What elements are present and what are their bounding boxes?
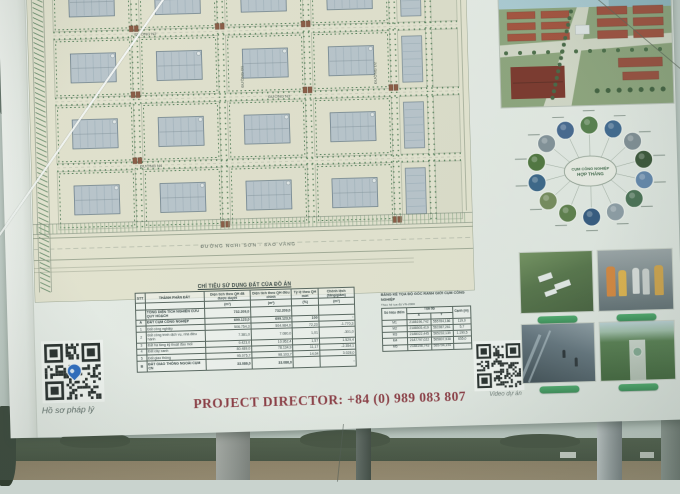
qr-pattern bbox=[476, 343, 521, 388]
rect-shape bbox=[512, 364, 514, 366]
billboard-pillar-concrete bbox=[216, 428, 250, 480]
rect-shape bbox=[510, 364, 512, 366]
water-tank bbox=[368, 47, 372, 51]
industry-photo-circle bbox=[580, 116, 598, 134]
rect-shape bbox=[68, 357, 71, 360]
industry-photo-circle bbox=[635, 171, 653, 189]
rect-shape bbox=[497, 346, 499, 348]
rect-shape bbox=[69, 392, 72, 395]
industry-photo-circle bbox=[625, 189, 643, 207]
rect-shape bbox=[96, 375, 99, 378]
rect-shape bbox=[85, 386, 88, 389]
rect-shape bbox=[76, 354, 79, 357]
rect-shape bbox=[61, 373, 64, 376]
rect-shape bbox=[519, 368, 521, 370]
photo-scene: ĐƯỜNG N2ĐƯỜNG N3ĐƯỜNG N4ĐƯỜNG D1ĐƯỜNG D2… bbox=[0, 0, 680, 480]
rect-shape bbox=[93, 391, 96, 394]
satellite-label bbox=[516, 185, 528, 186]
photo-label-pill bbox=[618, 383, 658, 391]
substation bbox=[303, 87, 307, 93]
rect-shape bbox=[82, 381, 85, 384]
industry-photo-circle bbox=[606, 203, 624, 221]
rect-shape bbox=[491, 365, 493, 367]
rect-shape bbox=[495, 360, 497, 362]
industry-photo-circle bbox=[634, 150, 652, 168]
industry-photo-circle bbox=[556, 121, 574, 139]
rect-shape bbox=[479, 363, 481, 365]
rect-shape bbox=[75, 394, 78, 397]
hub-spoke bbox=[570, 138, 579, 158]
rect-shape bbox=[85, 378, 88, 381]
rect-shape bbox=[493, 354, 495, 356]
rect-shape bbox=[495, 358, 497, 360]
water-tank bbox=[372, 179, 376, 183]
table-cell: M5 bbox=[383, 344, 408, 351]
avenue-path bbox=[629, 340, 646, 380]
rect-shape bbox=[69, 381, 72, 384]
rect-shape bbox=[58, 365, 61, 368]
rect-shape bbox=[66, 352, 69, 355]
table-cell bbox=[453, 343, 472, 350]
rect-shape bbox=[99, 393, 102, 396]
industry-photo-circle bbox=[539, 192, 557, 210]
rect-shape bbox=[494, 371, 496, 373]
rect-shape bbox=[72, 392, 75, 395]
rect-shape bbox=[45, 371, 48, 374]
rect-shape bbox=[511, 379, 513, 381]
photo-aerial-park bbox=[520, 251, 594, 313]
industry-photo-circle bbox=[623, 132, 641, 150]
hub-spoke bbox=[601, 137, 610, 157]
rect-shape bbox=[93, 380, 96, 383]
red-roof bbox=[597, 30, 627, 39]
coordinate-table: Số hiệu điểmTọa độCạnh (m)XY M12188196,7… bbox=[381, 305, 472, 351]
red-roof bbox=[541, 11, 569, 19]
photo-label-pill bbox=[616, 313, 656, 321]
rect-shape bbox=[479, 369, 481, 371]
rect-shape bbox=[485, 361, 487, 363]
rect-shape bbox=[481, 361, 483, 363]
person bbox=[562, 350, 565, 358]
satellite-label bbox=[641, 206, 653, 207]
aerial-rendering bbox=[498, 0, 673, 107]
satellite-label bbox=[552, 117, 564, 118]
photo-site-visit-people bbox=[598, 249, 674, 311]
rect-shape bbox=[90, 375, 93, 378]
rect-shape bbox=[506, 371, 508, 373]
industry-photo-circle bbox=[527, 153, 545, 171]
rect-shape bbox=[99, 396, 102, 399]
rect-shape bbox=[61, 365, 64, 368]
satellite-label bbox=[639, 131, 651, 132]
water-tank bbox=[112, 120, 116, 124]
rect-shape bbox=[96, 386, 99, 389]
street-label: ĐƯỜNG N3 bbox=[268, 93, 291, 99]
rect-shape bbox=[500, 383, 502, 385]
rect-shape bbox=[71, 354, 74, 357]
satellite-label bbox=[586, 230, 598, 231]
rect-shape bbox=[45, 368, 48, 371]
table-header-cell: Cạnh (m) bbox=[452, 306, 471, 319]
coordinate-section: BẢNG KÊ TỌA ĐỘ GÓC RANH GIỚI CỤM CÔNG NG… bbox=[381, 290, 473, 351]
rect-shape bbox=[72, 384, 75, 387]
rect-shape bbox=[508, 366, 510, 368]
water-tank bbox=[111, 54, 115, 58]
street-label: ĐƯỜNG N4 bbox=[140, 163, 163, 169]
rect-shape bbox=[69, 397, 72, 400]
water-tank bbox=[282, 49, 286, 53]
hub-spoke bbox=[591, 186, 592, 208]
rect-shape bbox=[498, 383, 500, 385]
red-roof bbox=[623, 71, 659, 80]
rect-shape bbox=[481, 378, 487, 384]
rect-shape bbox=[511, 375, 513, 377]
satellite-label bbox=[617, 223, 629, 224]
rect-shape bbox=[480, 348, 486, 354]
hub-center-line2: HỢP THẮNG bbox=[577, 171, 604, 177]
rect-shape bbox=[493, 346, 495, 348]
rect-shape bbox=[493, 363, 495, 365]
rect-shape bbox=[498, 371, 500, 373]
rect-shape bbox=[500, 373, 502, 375]
rendered-building bbox=[544, 288, 557, 297]
satellite-label bbox=[555, 225, 567, 226]
rect-shape bbox=[515, 383, 517, 385]
rect-shape bbox=[519, 370, 521, 372]
rect-shape bbox=[510, 362, 512, 364]
rect-shape bbox=[498, 362, 500, 364]
hub-spoke bbox=[616, 173, 636, 178]
substation bbox=[308, 87, 312, 93]
rect-shape bbox=[73, 349, 76, 352]
rect-shape bbox=[502, 354, 504, 356]
industry-photo-circle bbox=[537, 134, 555, 152]
satellite-label bbox=[654, 181, 666, 182]
rect-shape bbox=[87, 364, 90, 367]
table-header-cell: STT bbox=[135, 293, 145, 304]
water-tank bbox=[284, 115, 288, 119]
satellite-label bbox=[530, 209, 542, 210]
rect-shape bbox=[497, 354, 499, 356]
rect-shape bbox=[96, 394, 99, 397]
rect-shape bbox=[512, 362, 514, 364]
rect-shape bbox=[95, 364, 98, 367]
industrial-lot bbox=[430, 0, 458, 21]
rect-shape bbox=[497, 350, 499, 352]
hub-spoke bbox=[602, 184, 611, 204]
water-tank bbox=[200, 183, 204, 187]
rect-shape bbox=[51, 387, 59, 395]
photo-walkway bbox=[522, 323, 596, 383]
rect-shape bbox=[50, 373, 53, 376]
rect-shape bbox=[87, 367, 90, 370]
rect-shape bbox=[487, 361, 489, 363]
rect-shape bbox=[58, 373, 61, 376]
hub-spoke bbox=[589, 134, 590, 156]
rect-shape bbox=[98, 364, 101, 367]
rect-shape bbox=[69, 394, 72, 397]
rect-shape bbox=[519, 381, 521, 383]
industrial-lot bbox=[433, 95, 461, 154]
rect-shape bbox=[504, 375, 506, 377]
table-cell: 33.086,0 bbox=[252, 357, 294, 369]
qr-code-project-video bbox=[476, 343, 521, 388]
rect-shape bbox=[88, 386, 91, 389]
rect-shape bbox=[481, 365, 483, 367]
hub-spoke bbox=[546, 175, 566, 180]
person bbox=[618, 270, 627, 296]
table-cell: 2 bbox=[136, 332, 146, 343]
table-cell: 1,01 bbox=[293, 327, 320, 338]
project-billboard: ĐƯỜNG N2ĐƯỜNG N3ĐƯỜNG N4ĐƯỜNG D1ĐƯỜNG D2… bbox=[0, 0, 680, 438]
rect-shape bbox=[506, 375, 508, 377]
satellite-label bbox=[583, 110, 595, 111]
rect-shape bbox=[80, 386, 83, 389]
rect-shape bbox=[512, 368, 514, 370]
rect-shape bbox=[66, 354, 69, 357]
rect-shape bbox=[55, 373, 58, 376]
rect-shape bbox=[494, 379, 496, 381]
substation bbox=[129, 26, 133, 32]
rect-shape bbox=[88, 394, 91, 397]
rect-shape bbox=[483, 367, 485, 369]
red-roof bbox=[633, 17, 663, 26]
rect-shape bbox=[65, 349, 68, 352]
rect-shape bbox=[93, 367, 96, 370]
satellite-label bbox=[528, 134, 540, 135]
red-roof bbox=[508, 34, 536, 42]
rect-shape bbox=[477, 369, 479, 371]
table-header-cell: Tỷ lệ theo QH mới bbox=[291, 288, 318, 299]
water-tank bbox=[198, 117, 202, 121]
rect-shape bbox=[498, 360, 500, 362]
rect-shape bbox=[55, 365, 58, 368]
substation bbox=[389, 85, 393, 91]
distant-building bbox=[640, 452, 654, 458]
rect-shape bbox=[93, 372, 96, 375]
rect-shape bbox=[515, 370, 517, 372]
rect-shape bbox=[65, 346, 68, 349]
rect-shape bbox=[517, 381, 519, 383]
rect-shape bbox=[500, 360, 502, 362]
rect-shape bbox=[49, 349, 57, 357]
rect-shape bbox=[74, 351, 77, 354]
water-tank bbox=[197, 51, 201, 55]
rect-shape bbox=[502, 362, 504, 364]
project-director-hotline: PROJECT DIRECTOR: +84 (0) 989 083 807 bbox=[120, 387, 540, 415]
rect-shape bbox=[88, 391, 91, 394]
substation bbox=[301, 21, 305, 27]
industrial-lot bbox=[435, 161, 463, 220]
industry-photo-circle bbox=[558, 204, 576, 222]
rendered-building bbox=[554, 279, 571, 290]
rect-shape bbox=[72, 389, 75, 392]
person bbox=[642, 268, 650, 294]
red-roof bbox=[618, 57, 662, 67]
rect-shape bbox=[502, 383, 504, 385]
substation bbox=[221, 221, 225, 227]
qr-caption-left: Hồ sơ pháp lý bbox=[42, 403, 132, 416]
satellite-label bbox=[653, 155, 665, 156]
rect-shape bbox=[495, 350, 497, 352]
rect-shape bbox=[487, 365, 489, 367]
rect-shape bbox=[517, 375, 519, 377]
rect-shape bbox=[494, 377, 496, 379]
rect-shape bbox=[91, 388, 94, 391]
person bbox=[606, 266, 616, 296]
rect-shape bbox=[497, 356, 499, 358]
rect-shape bbox=[495, 354, 497, 356]
hub-spoke bbox=[615, 162, 635, 167]
rect-shape bbox=[55, 368, 58, 371]
table-cell: 565794,194 bbox=[431, 343, 453, 350]
rect-shape bbox=[500, 362, 502, 364]
person bbox=[575, 357, 578, 366]
tree-clump bbox=[500, 434, 580, 448]
substation bbox=[394, 84, 398, 90]
rect-shape bbox=[98, 372, 101, 375]
table-row: M52188198,743565794,194 bbox=[383, 343, 472, 352]
photo-label-pill bbox=[539, 385, 579, 393]
hub-spoke bbox=[571, 185, 580, 205]
rendered-building bbox=[538, 272, 553, 282]
rect-shape bbox=[55, 371, 58, 374]
industry-hub-diagram: CỤM CÔNG NGHIỆPHỢP THẮNG bbox=[508, 105, 674, 251]
rect-shape bbox=[50, 376, 53, 379]
rect-shape bbox=[83, 386, 86, 389]
substation bbox=[306, 21, 310, 27]
satellite-label bbox=[614, 115, 626, 116]
table-cell: - bbox=[320, 355, 356, 366]
rect-shape bbox=[487, 367, 489, 369]
rect-shape bbox=[506, 369, 508, 371]
table-cell: 2188198,743 bbox=[408, 344, 432, 351]
rect-shape bbox=[91, 391, 94, 394]
master-plan-map: ĐƯỜNG N2ĐƯỜNG N3ĐƯỜNG N4ĐƯỜNG D1ĐƯỜNG D2… bbox=[26, 0, 475, 303]
rect-shape bbox=[71, 357, 74, 360]
red-roof bbox=[541, 22, 569, 30]
rect-shape bbox=[498, 379, 500, 381]
rect-shape bbox=[65, 344, 68, 347]
satellite-label bbox=[515, 158, 527, 159]
rect-shape bbox=[493, 361, 495, 363]
rect-shape bbox=[58, 371, 61, 374]
rect-shape bbox=[73, 346, 76, 349]
rect-shape bbox=[491, 363, 493, 365]
rect-shape bbox=[95, 367, 98, 370]
rect-shape bbox=[93, 370, 96, 373]
rect-shape bbox=[496, 371, 498, 373]
rect-shape bbox=[513, 373, 515, 375]
rect-shape bbox=[45, 376, 48, 379]
rect-shape bbox=[77, 381, 80, 384]
substation bbox=[226, 221, 230, 227]
rect-shape bbox=[515, 366, 517, 368]
rect-shape bbox=[500, 371, 502, 373]
rect-shape bbox=[63, 373, 66, 376]
rect-shape bbox=[507, 381, 509, 383]
rect-shape bbox=[76, 357, 79, 360]
substation bbox=[220, 23, 224, 29]
rect-shape bbox=[96, 396, 99, 399]
hub-spoke bbox=[554, 149, 570, 163]
rect-shape bbox=[75, 389, 78, 392]
rect-shape bbox=[85, 383, 88, 386]
street-label: ĐƯỜNG D1 bbox=[239, 65, 245, 88]
substation bbox=[131, 92, 135, 98]
rect-shape bbox=[496, 383, 498, 385]
rect-shape bbox=[502, 364, 504, 366]
rect-shape bbox=[481, 369, 483, 371]
rect-shape bbox=[502, 369, 504, 371]
table-cell bbox=[292, 305, 319, 316]
rect-shape bbox=[485, 365, 487, 367]
rect-shape bbox=[500, 354, 502, 356]
industrial-lot bbox=[431, 29, 459, 88]
table-cell: B bbox=[137, 361, 147, 372]
rect-shape bbox=[500, 365, 502, 367]
rect-shape bbox=[517, 372, 519, 374]
industry-photo-circle bbox=[582, 208, 600, 226]
rect-shape bbox=[68, 354, 71, 357]
rect-shape bbox=[506, 362, 508, 364]
water-tank bbox=[286, 181, 290, 185]
person bbox=[632, 268, 640, 294]
substation bbox=[133, 158, 137, 164]
rect-shape bbox=[504, 362, 506, 364]
rect-shape bbox=[500, 369, 502, 371]
rect-shape bbox=[61, 370, 64, 373]
land-use-section: CHỈ TIÊU SỬ DỤNG ĐẤT CỦA ĐỒ ÁN STTTHÀNH … bbox=[134, 280, 356, 373]
rect-shape bbox=[504, 377, 506, 379]
rect-shape bbox=[77, 386, 80, 389]
water-tank bbox=[114, 186, 118, 190]
rect-shape bbox=[514, 362, 516, 364]
rect-shape bbox=[502, 356, 504, 358]
rect-shape bbox=[69, 386, 72, 389]
photo-label-pill bbox=[537, 315, 577, 323]
industry-photo-circle bbox=[604, 120, 622, 138]
red-roof bbox=[507, 23, 535, 31]
rect-shape bbox=[75, 397, 78, 400]
rect-shape bbox=[495, 352, 497, 354]
substation bbox=[136, 92, 140, 98]
rect-shape bbox=[508, 364, 510, 366]
rect-shape bbox=[516, 362, 518, 364]
rect-shape bbox=[508, 373, 510, 375]
hub-spoke bbox=[555, 181, 571, 195]
rect-shape bbox=[76, 343, 79, 346]
rect-shape bbox=[87, 348, 95, 356]
rect-shape bbox=[496, 377, 498, 379]
rect-shape bbox=[50, 368, 53, 371]
tree-clump bbox=[300, 430, 390, 448]
rect-shape bbox=[493, 352, 495, 354]
rect-shape bbox=[511, 381, 513, 383]
street-label: ĐƯỜNG D2 bbox=[372, 61, 378, 84]
rect-shape bbox=[506, 373, 508, 375]
substation bbox=[398, 216, 402, 222]
rect-shape bbox=[93, 375, 96, 378]
white-building bbox=[575, 25, 589, 34]
distant-building bbox=[560, 452, 576, 458]
rect-shape bbox=[93, 386, 96, 389]
rect-shape bbox=[509, 377, 511, 379]
rect-shape bbox=[71, 344, 74, 347]
rect-shape bbox=[67, 397, 70, 400]
substation bbox=[393, 216, 397, 222]
industry-photo-circle bbox=[528, 174, 546, 192]
